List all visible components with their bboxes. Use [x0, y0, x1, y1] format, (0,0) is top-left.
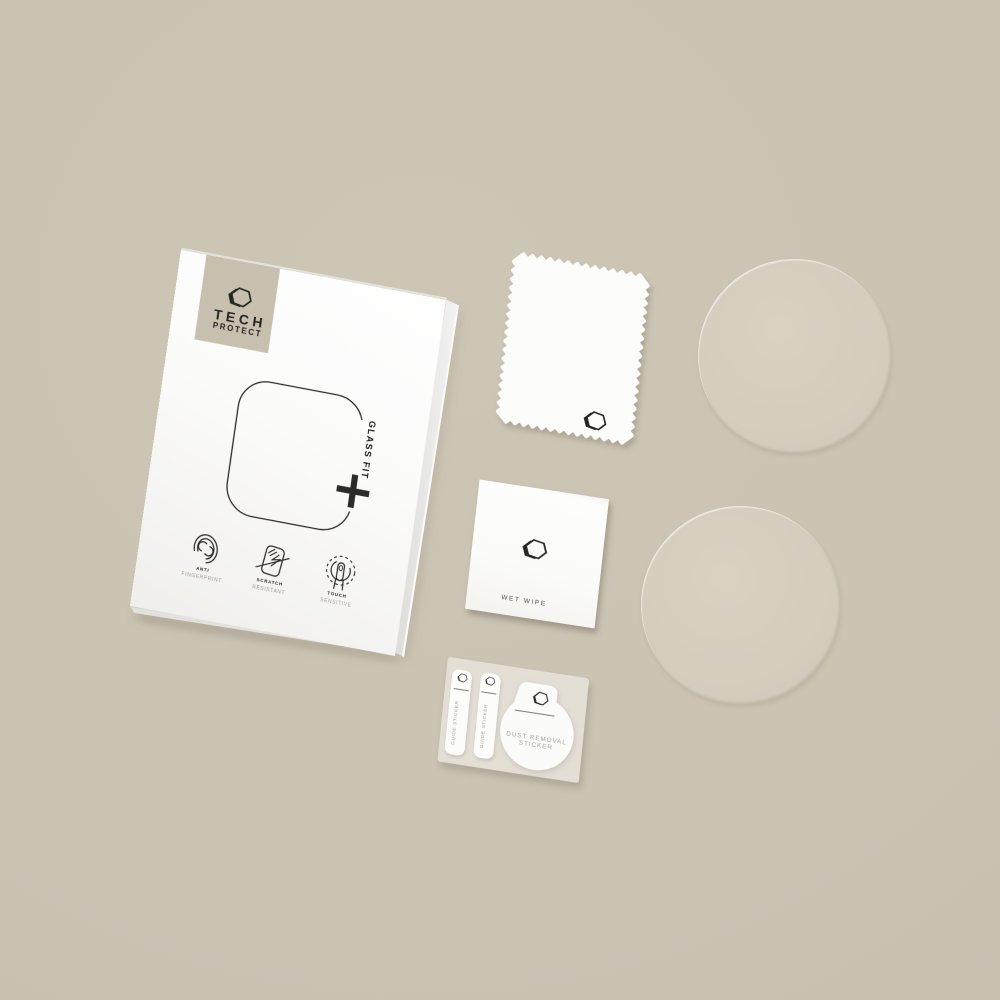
svg-text:GLASS FIT: GLASS FIT [359, 420, 377, 480]
